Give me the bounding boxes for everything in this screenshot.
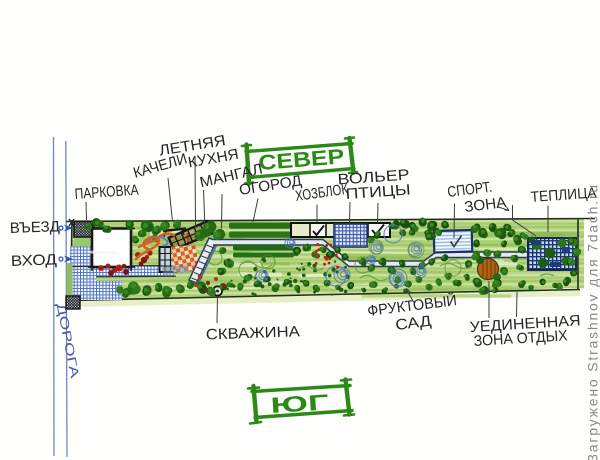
svg-text:Загружено Strashnov для 7dach.: Загружено Strashnov для 7dach.ru — [585, 183, 600, 460]
svg-text:ВЪЕЗД: ВЪЕЗД — [10, 218, 61, 237]
svg-text:ВХОД: ВХОД — [11, 251, 58, 270]
svg-text:ЮГ: ЮГ — [270, 389, 330, 418]
svg-text:СКВАЖИНА: СКВАЖИНА — [206, 323, 301, 343]
